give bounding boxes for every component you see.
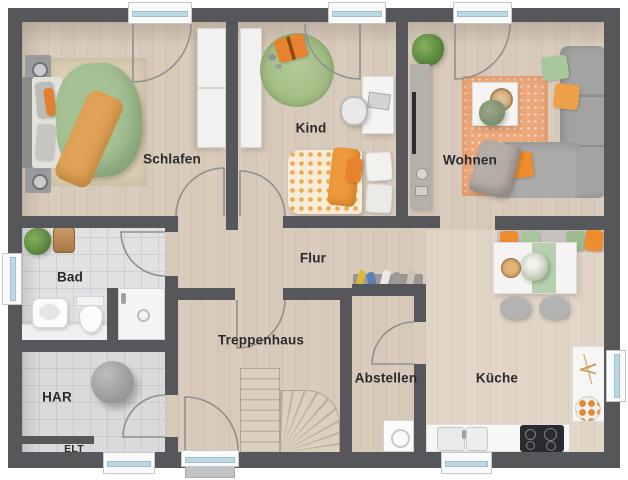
door-arcs: [0, 0, 628, 480]
door-arc-har: [123, 395, 165, 437]
room-label-wohnen: Wohnen: [443, 153, 497, 168]
room-label-elt: ELT: [64, 443, 84, 455]
door-arc-schlafen: [176, 168, 224, 216]
door-arc-abstellen: [372, 322, 414, 364]
room-label-abstellen: Abstellen: [355, 371, 418, 386]
room-label-kind: Kind: [296, 121, 327, 136]
door-arc-entrance: [185, 397, 238, 450]
floor-plan: Schlafen Kind Wohnen Bad Flur Treppenhau…: [0, 0, 628, 480]
room-label-schlafen: Schlafen: [143, 152, 201, 167]
door-arc-kind: [240, 171, 285, 216]
room-label-har: HAR: [42, 390, 72, 405]
door-arc-bad: [121, 232, 165, 276]
room-label-flur: Flur: [300, 251, 326, 266]
room-label-bad: Bad: [57, 270, 83, 285]
room-label-treppenhaus: Treppenhaus: [218, 333, 304, 348]
door-arc-terrace-kind: [305, 24, 360, 79]
door-arc-terrace-wohnen: [455, 24, 510, 79]
room-label-kueche: Küche: [476, 371, 518, 386]
door-arc-terrace-schlafen: [133, 24, 191, 82]
